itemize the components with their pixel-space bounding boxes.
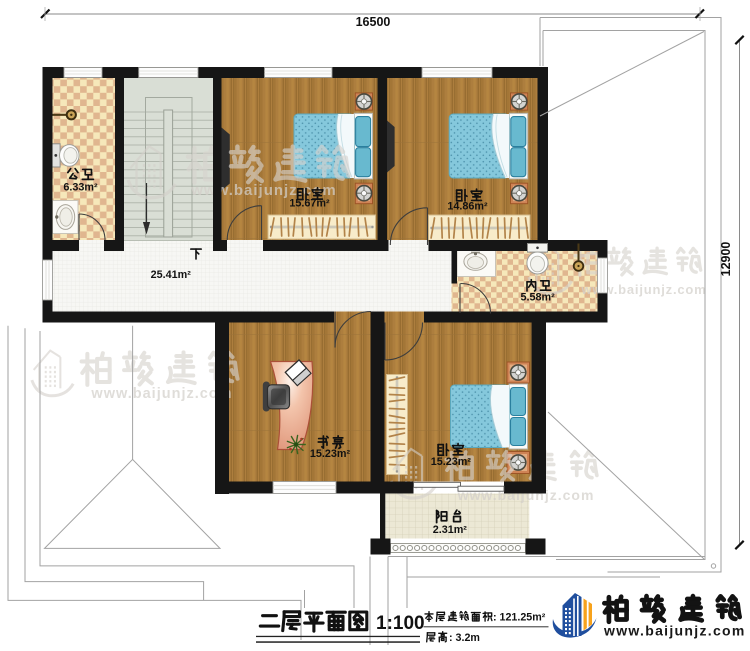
svg-text:12900: 12900 — [719, 242, 733, 277]
svg-text:5.58m²: 5.58m² — [520, 292, 555, 304]
svg-text:15.67m²: 15.67m² — [289, 198, 330, 210]
svg-text:15.23m²: 15.23m² — [431, 456, 472, 468]
svg-text:: 121.25m²: : 121.25m² — [493, 612, 546, 624]
svg-text:6.33m²: 6.33m² — [63, 182, 98, 194]
svg-text:: 3.2m: : 3.2m — [449, 632, 480, 644]
svg-text:www.baijunjz.com: www.baijunjz.com — [603, 623, 746, 639]
svg-text:25.41m²: 25.41m² — [151, 269, 192, 281]
svg-text:www.baijunjz.com: www.baijunjz.com — [90, 386, 232, 402]
svg-text:15.23m²: 15.23m² — [310, 448, 351, 460]
svg-text:2.31m²: 2.31m² — [433, 524, 468, 536]
svg-text:16500: 16500 — [356, 15, 391, 29]
svg-text:14.86m²: 14.86m² — [447, 200, 488, 212]
svg-text:1:100: 1:100 — [376, 613, 425, 634]
